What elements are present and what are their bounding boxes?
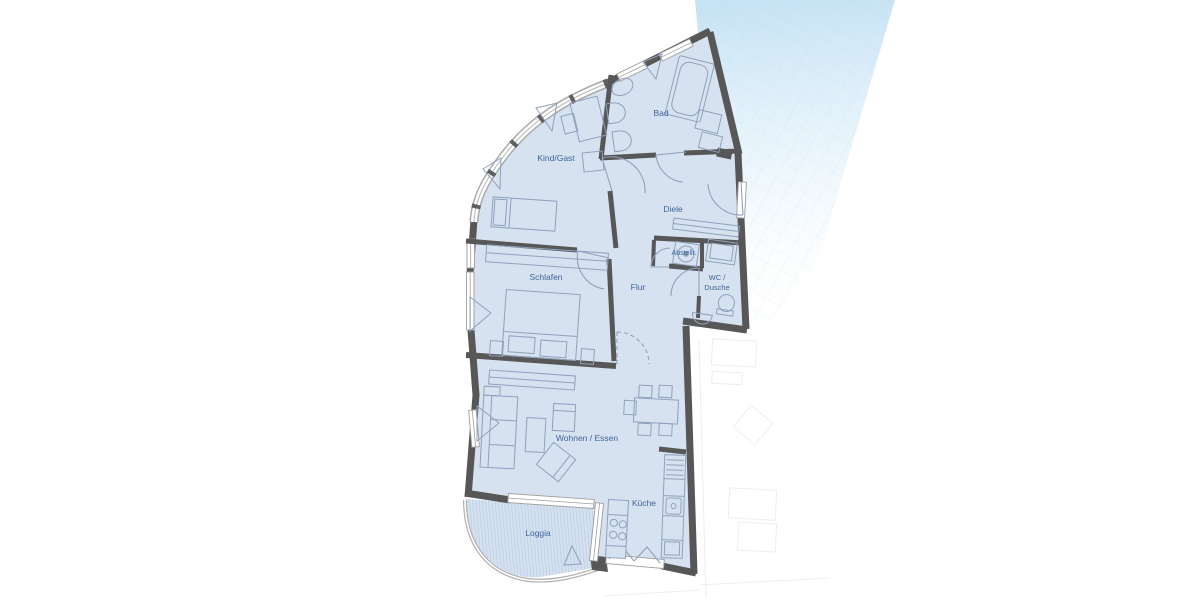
room-label-loggia: Loggia bbox=[525, 528, 551, 538]
room-label-abstellraum: Abstellr. bbox=[672, 250, 697, 257]
room-label-flur: Flur bbox=[631, 282, 646, 292]
room-label-kind-gast: Kind/Gast bbox=[537, 153, 575, 163]
room-label-kueche: Küche bbox=[632, 498, 656, 508]
kitchen-counter-right bbox=[661, 455, 686, 559]
floorplan-canvas: Kind/Gast Bad Diele Schlafen Flur Abstel… bbox=[0, 0, 1200, 600]
room-label-wc-line1: WC / bbox=[709, 273, 727, 282]
loggia-floor bbox=[465, 499, 599, 581]
room-label-bad: Bad bbox=[653, 108, 668, 118]
floorplan-page: Kind/Gast Bad Diele Schlafen Flur Abstel… bbox=[0, 0, 1200, 600]
room-label-wohnen-essen: Wohnen / Essen bbox=[556, 433, 618, 443]
room-label-wc-line2: Dusche bbox=[704, 283, 729, 292]
room-label-schlafen: Schlafen bbox=[529, 272, 562, 282]
kitchen-counter-stove bbox=[605, 500, 628, 559]
room-label-diele: Diele bbox=[663, 204, 683, 214]
